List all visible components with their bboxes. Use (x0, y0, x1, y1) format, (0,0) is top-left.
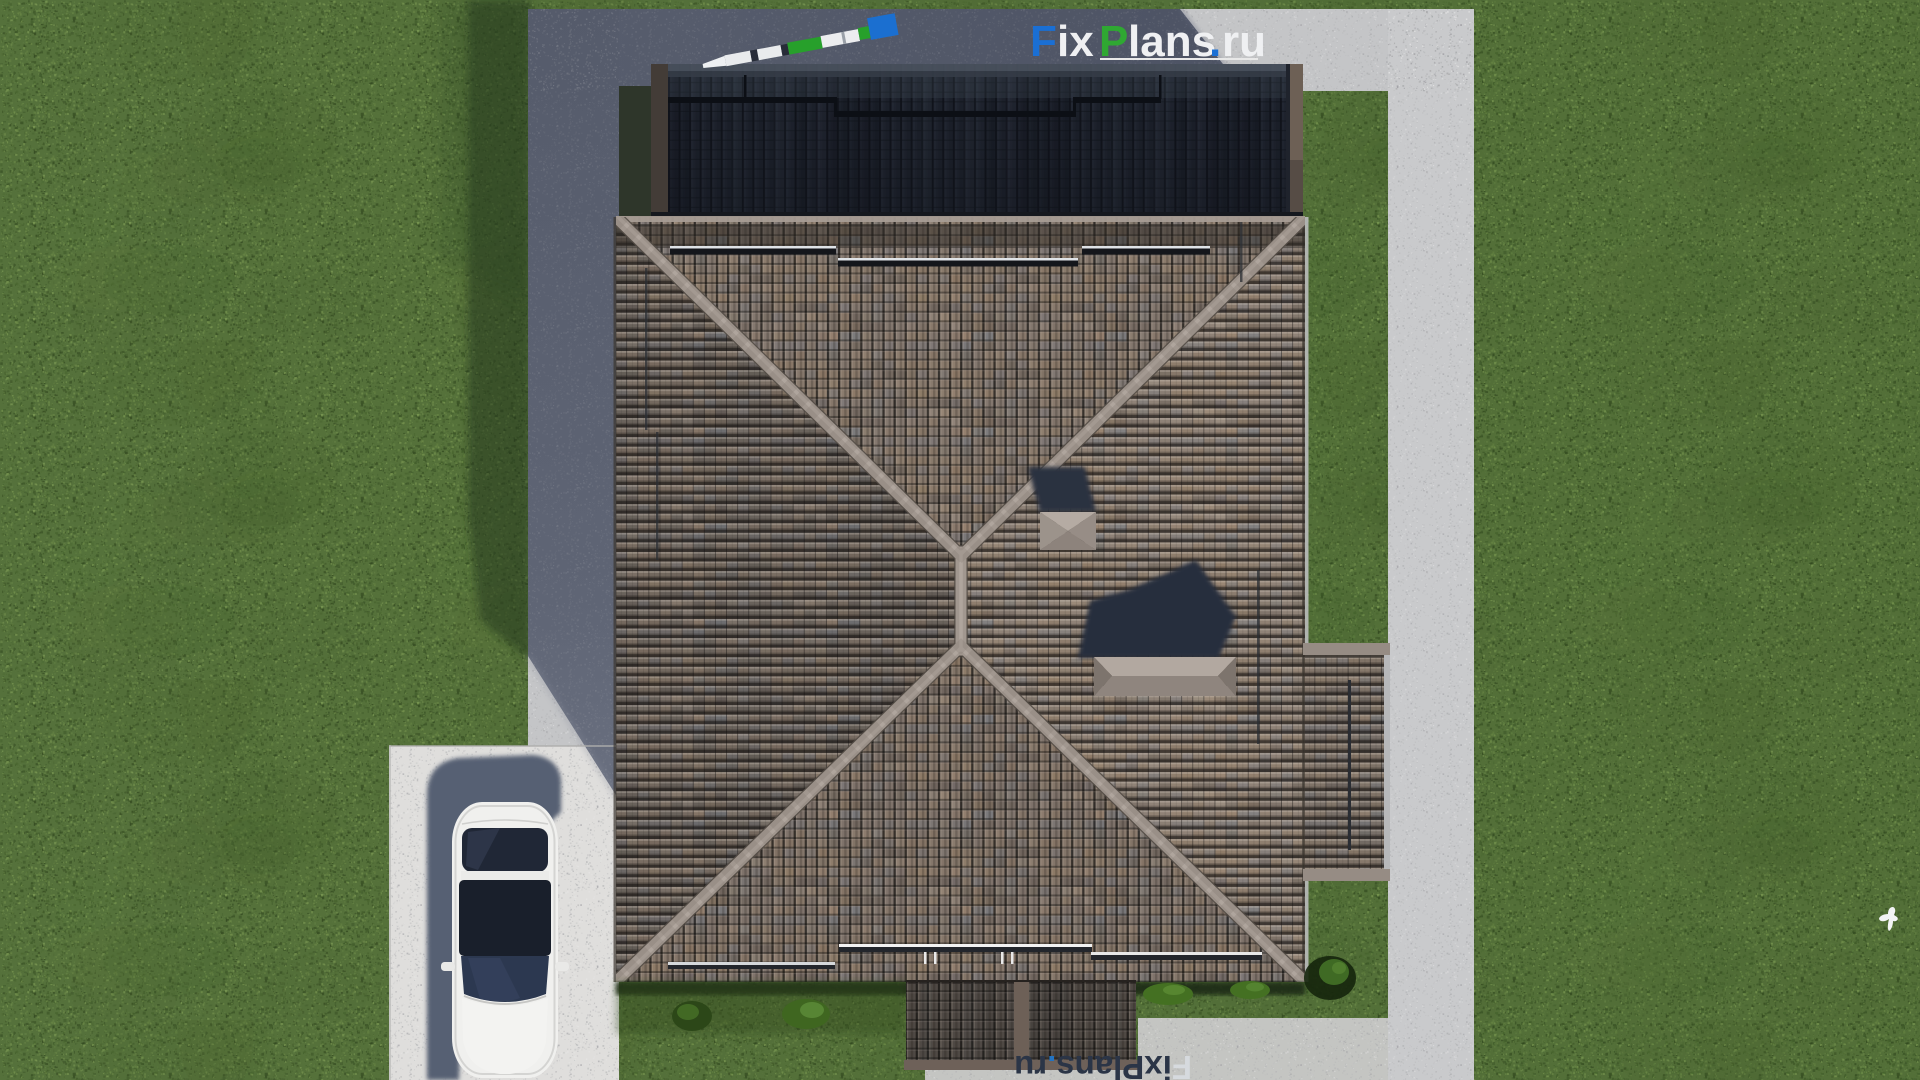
svg-text:FixPlans.ru: FixPlans.ru (1014, 1049, 1192, 1080)
svg-text:ix: ix (1057, 17, 1094, 66)
svg-text:F: F (1030, 17, 1057, 66)
